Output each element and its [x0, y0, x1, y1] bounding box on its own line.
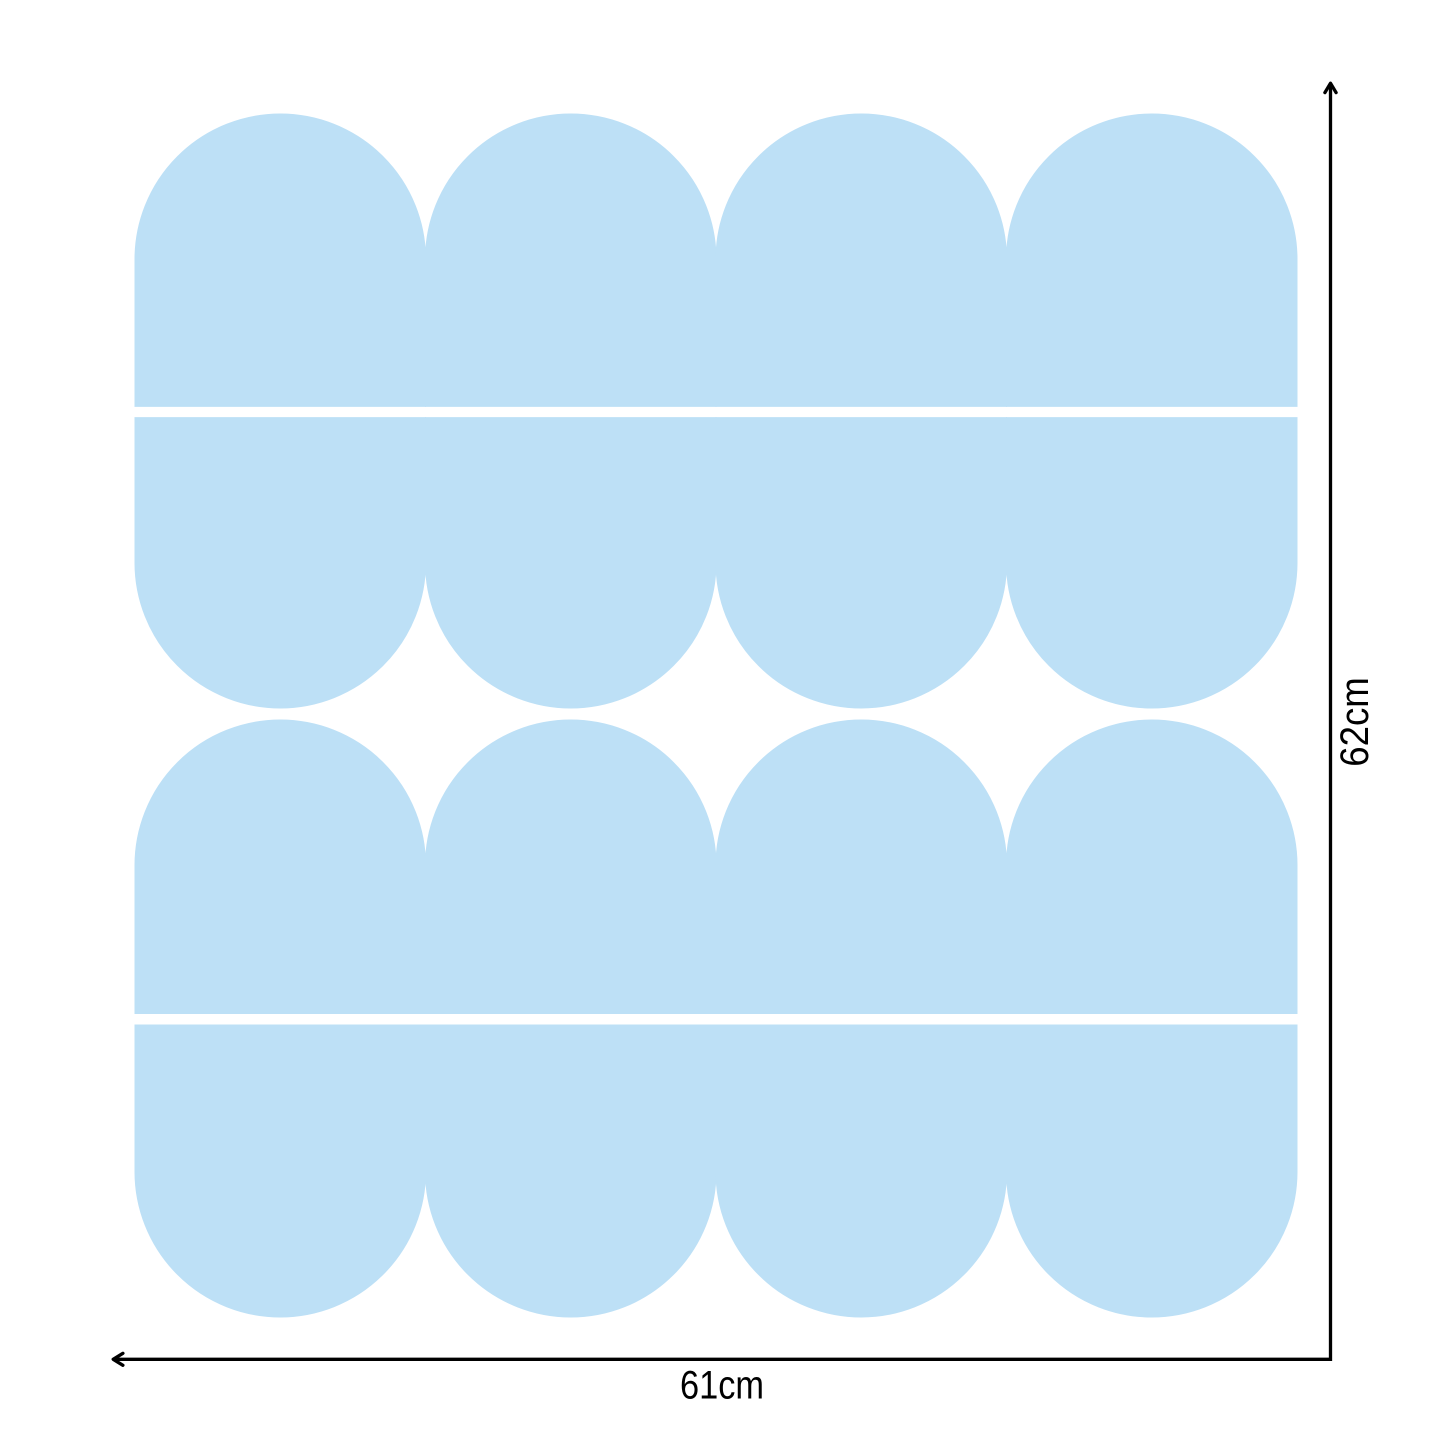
svg-text:61cm: 61cm: [680, 1364, 764, 1408]
svg-text:62cm: 62cm: [1333, 677, 1377, 767]
